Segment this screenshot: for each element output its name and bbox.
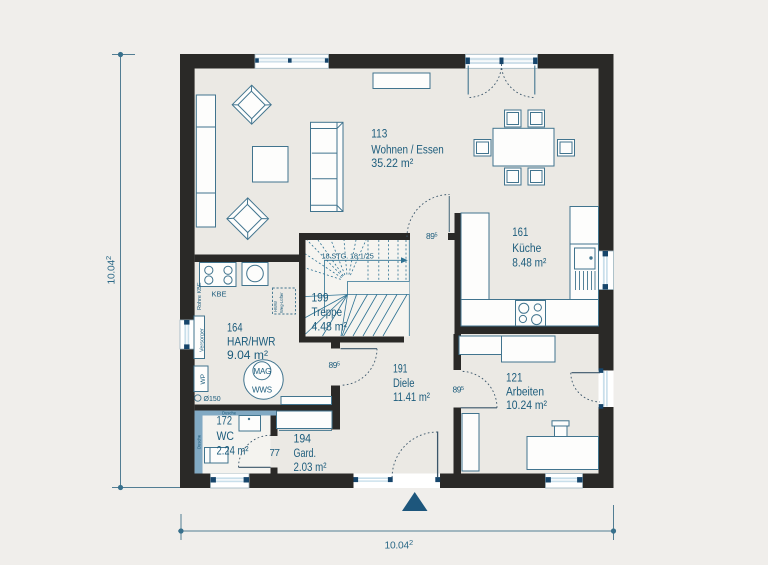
svg-text:161: 161 bbox=[512, 225, 528, 239]
svg-text:Diele: Diele bbox=[393, 376, 415, 390]
svg-text:191: 191 bbox=[393, 362, 408, 376]
svg-text:10.042: 10.042 bbox=[385, 538, 414, 552]
svg-text:HAR/HWR: HAR/HWR bbox=[227, 335, 276, 349]
svg-text:WWS: WWS bbox=[252, 386, 272, 395]
svg-text:8.48 m²: 8.48 m² bbox=[512, 256, 546, 270]
svg-text:199: 199 bbox=[312, 291, 329, 305]
svg-text:Arbeiten: Arbeiten bbox=[506, 384, 544, 398]
svg-text:Gard.: Gard. bbox=[294, 446, 317, 460]
svg-text:Versorger: Versorger bbox=[200, 328, 206, 352]
svg-text:11.41 m²: 11.41 m² bbox=[393, 390, 430, 404]
svg-text:9.04 m²: 9.04 m² bbox=[227, 348, 268, 362]
svg-text:Dusche: Dusche bbox=[222, 411, 237, 416]
svg-text:4.48 m²: 4.48 m² bbox=[312, 320, 348, 334]
svg-text:121: 121 bbox=[506, 371, 523, 385]
svg-text:Rohre KBE: Rohre KBE bbox=[197, 282, 203, 310]
svg-text:WC: WC bbox=[217, 429, 235, 443]
svg-text:2.03 m²: 2.03 m² bbox=[294, 460, 327, 474]
svg-text:Weg-Lüfter: Weg-Lüfter bbox=[279, 292, 284, 313]
svg-text:194: 194 bbox=[294, 431, 312, 445]
svg-text:MAG: MAG bbox=[254, 367, 272, 376]
svg-text:113: 113 bbox=[371, 127, 387, 141]
svg-text:Treppe: Treppe bbox=[312, 305, 343, 319]
svg-text:HWW: HWW bbox=[273, 301, 278, 312]
svg-text:10.24 m²: 10.24 m² bbox=[506, 398, 547, 412]
svg-text:WP: WP bbox=[200, 374, 207, 384]
svg-text:Küche: Küche bbox=[512, 241, 541, 255]
svg-text:Ø150: Ø150 bbox=[204, 396, 221, 403]
svg-text:10.042: 10.042 bbox=[104, 256, 118, 285]
svg-text:2.24 m²: 2.24 m² bbox=[217, 444, 249, 458]
svg-text:35.22 m²: 35.22 m² bbox=[371, 156, 413, 170]
svg-text:18 STG. 18.1/25: 18 STG. 18.1/25 bbox=[322, 252, 374, 261]
svg-text:Dusche: Dusche bbox=[197, 434, 202, 449]
svg-text:KBE: KBE bbox=[212, 290, 227, 299]
svg-text:Wohnen / Essen: Wohnen / Essen bbox=[371, 143, 444, 157]
svg-text:77: 77 bbox=[270, 448, 280, 459]
svg-text:164: 164 bbox=[227, 321, 243, 335]
